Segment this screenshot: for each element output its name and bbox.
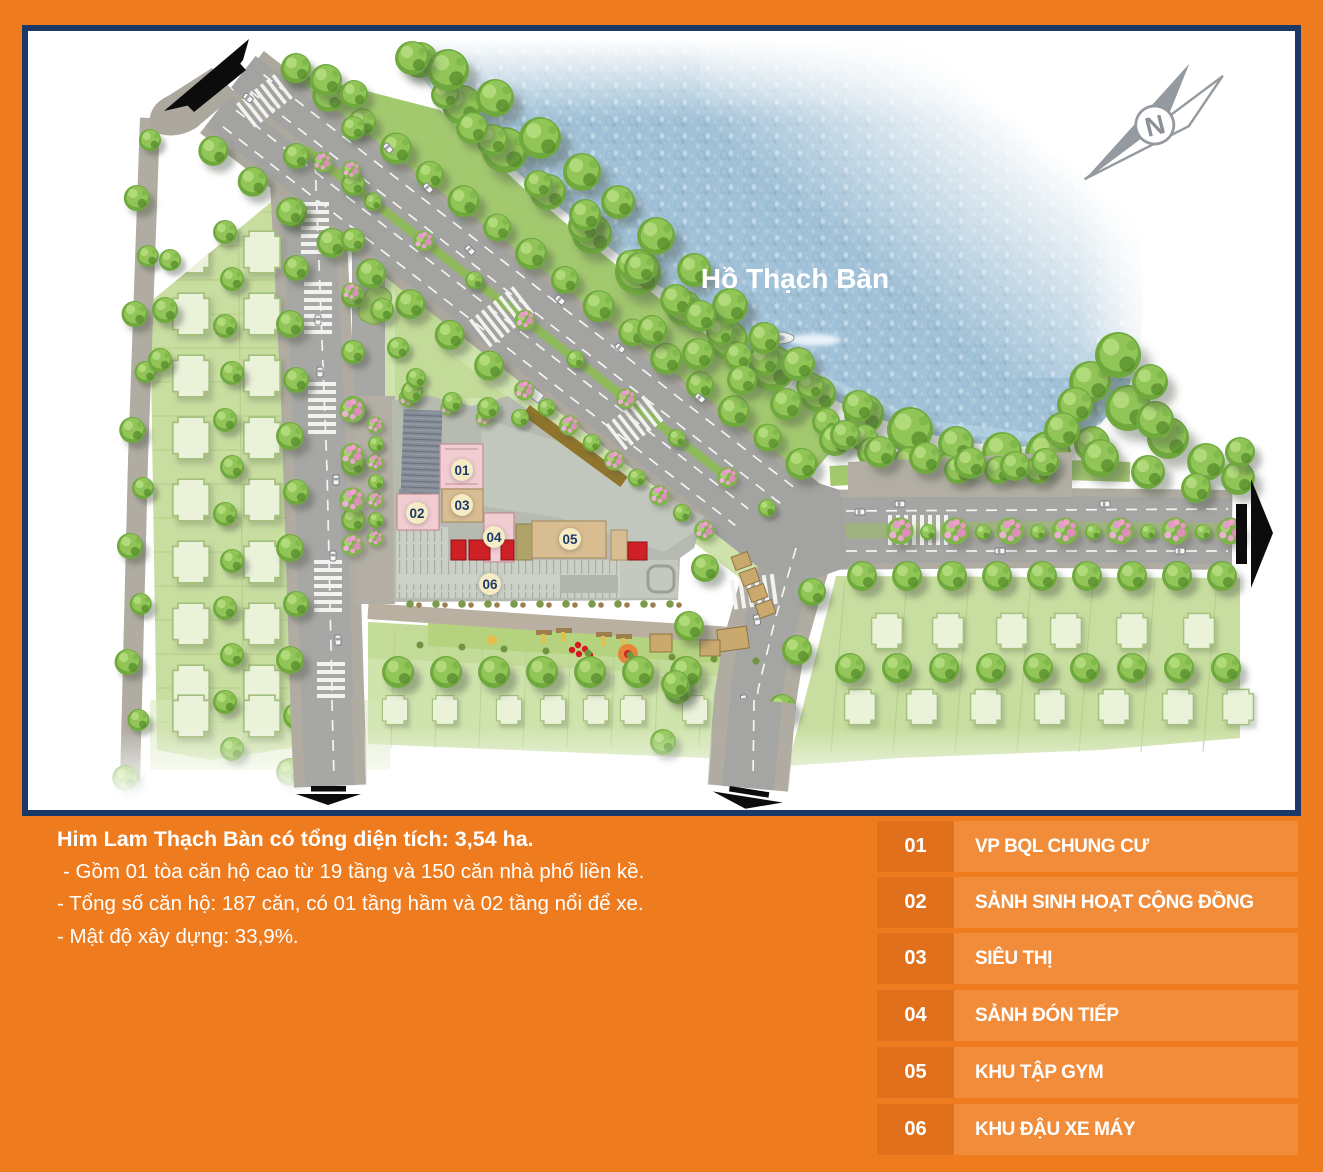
svg-text:03: 03 bbox=[454, 498, 470, 513]
svg-text:06: 06 bbox=[482, 577, 498, 592]
svg-text:02: 02 bbox=[409, 506, 424, 521]
svg-text:Hồ Thạch Bàn: Hồ Thạch Bàn bbox=[701, 263, 889, 294]
svg-text:05: 05 bbox=[562, 532, 578, 547]
svg-text:01: 01 bbox=[454, 463, 470, 478]
svg-text:04: 04 bbox=[486, 530, 502, 545]
